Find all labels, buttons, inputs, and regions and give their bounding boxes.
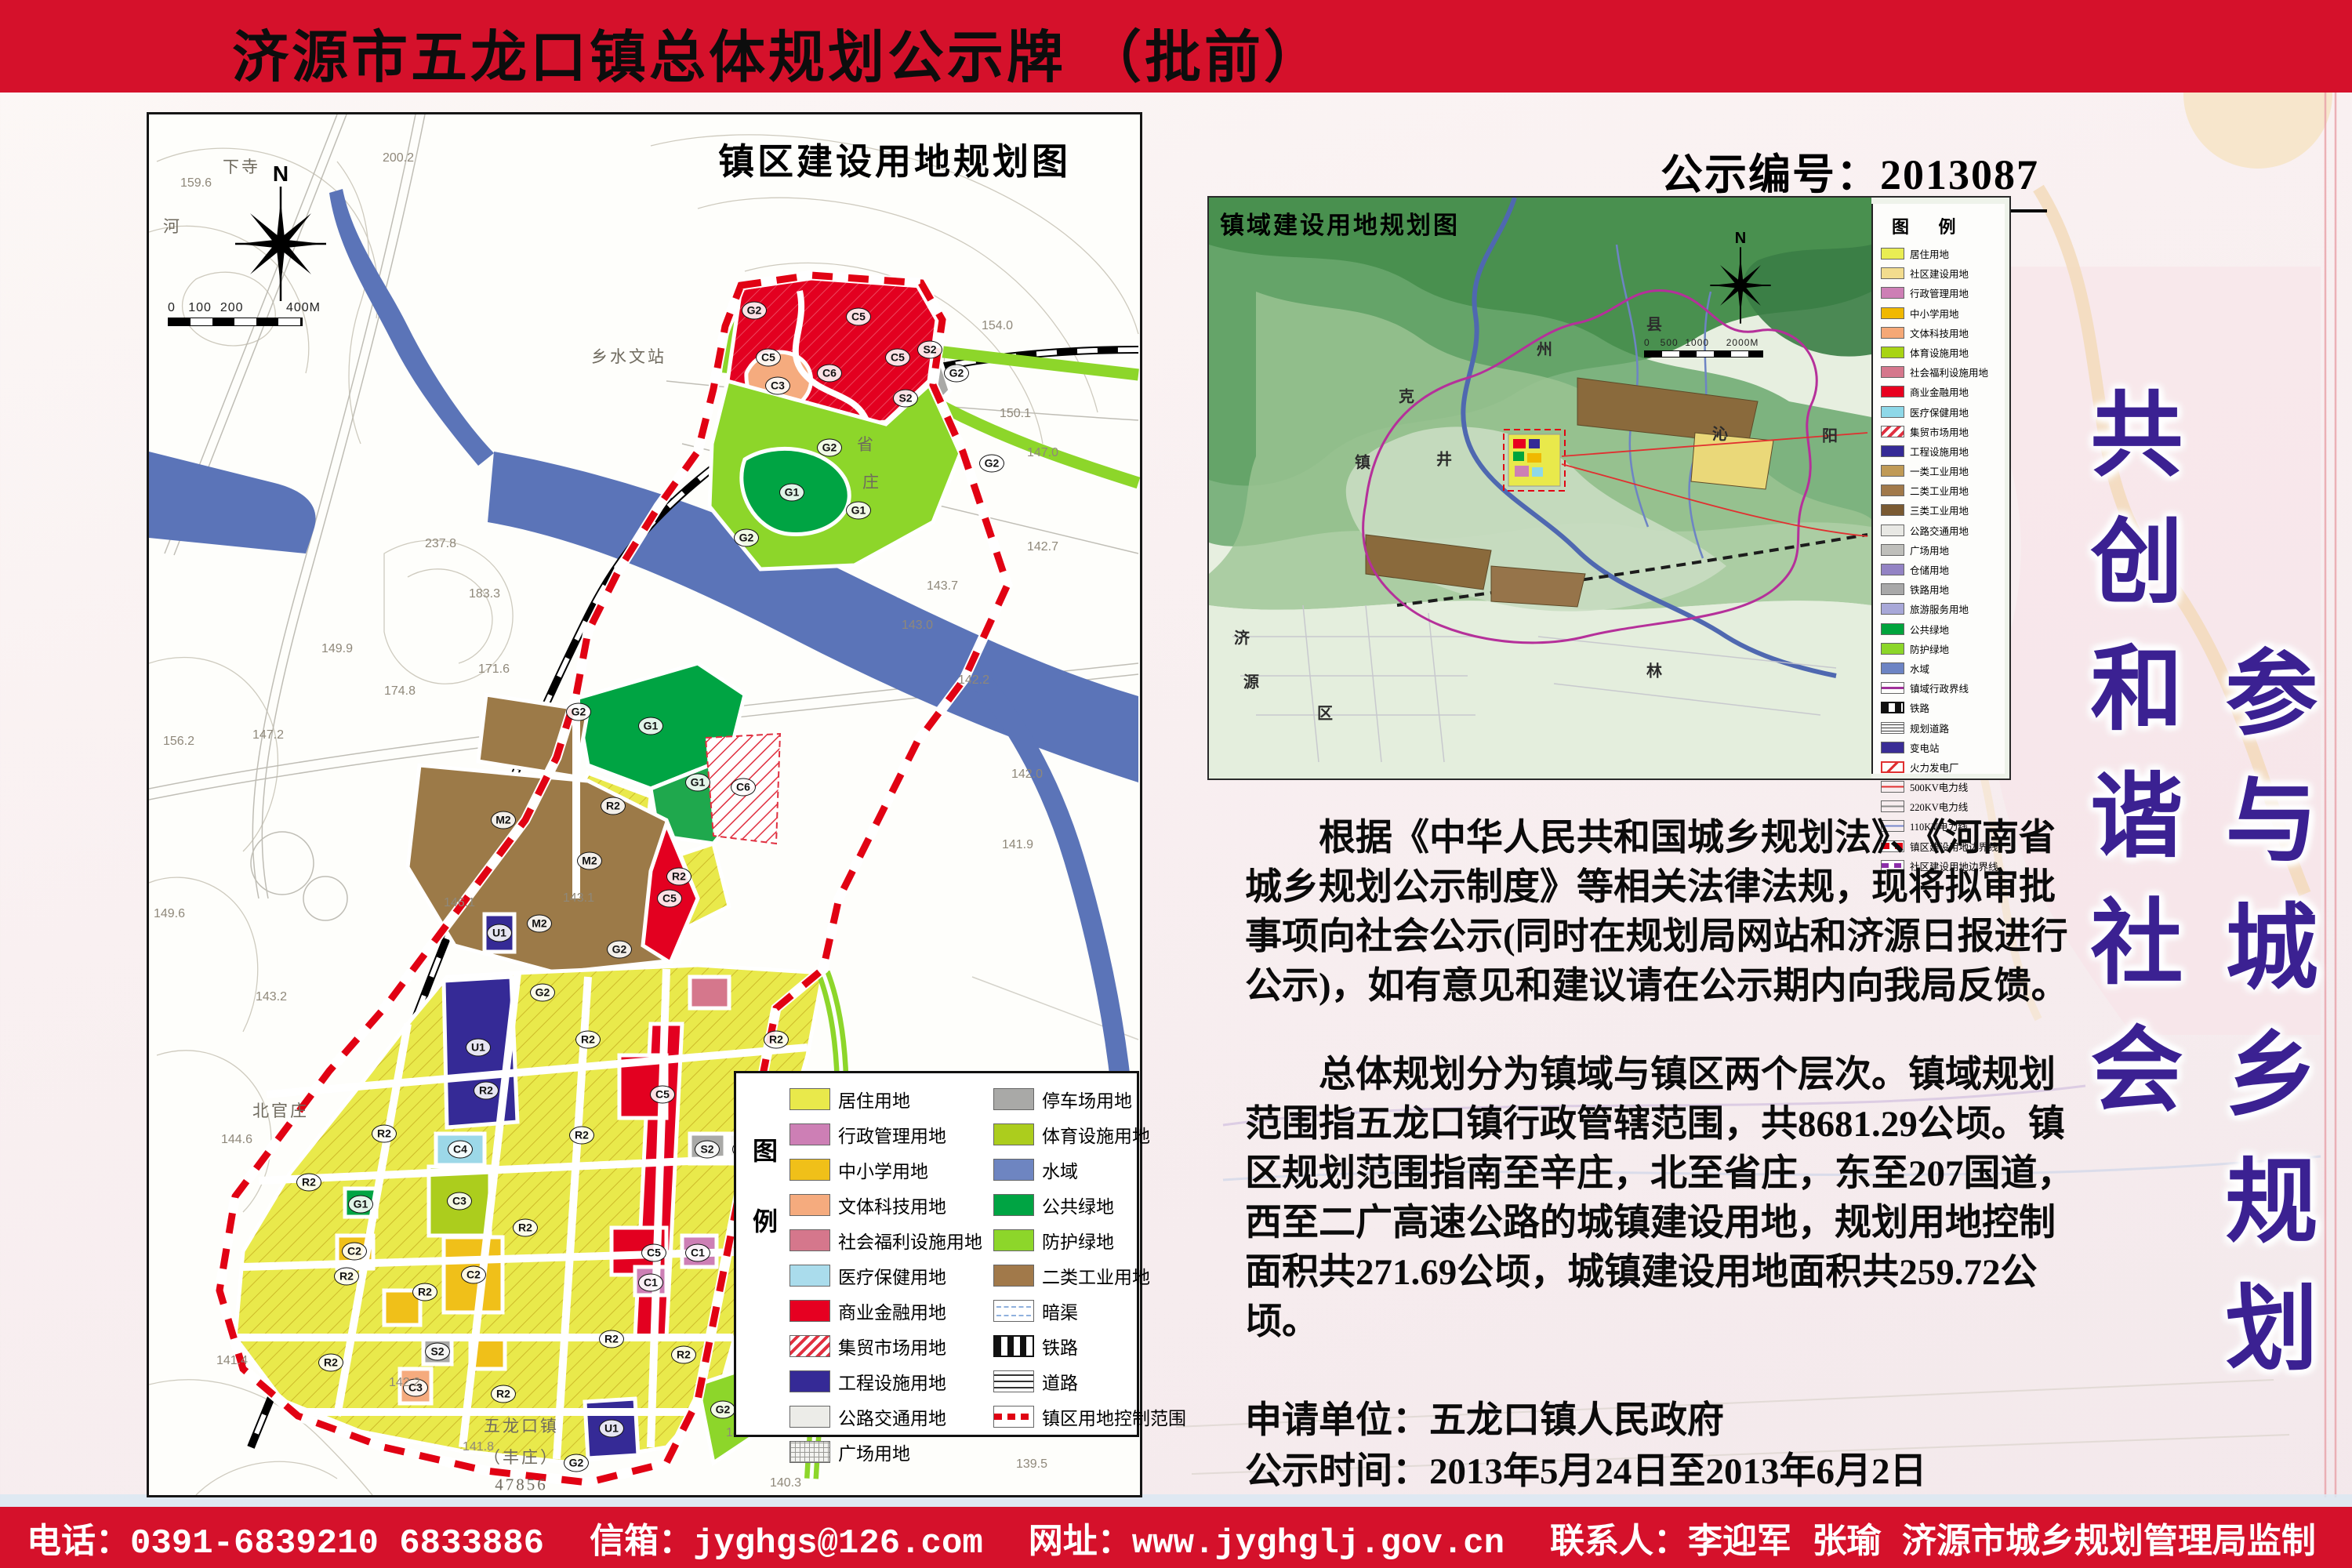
legend-item: 规划道路 — [1881, 720, 2002, 735]
legend-item: 二类工业用地 — [1881, 483, 2002, 498]
footer-phone: 电话：0391-6839210 6833886 — [27, 1512, 544, 1563]
legend-item: 旅游服务用地 — [1881, 601, 2002, 616]
zone-code-label: C5 — [657, 890, 682, 908]
legend-label: 仓储用地 — [1910, 562, 1949, 577]
legend-swatch — [789, 1300, 830, 1322]
legend-label: 居住用地 — [838, 1086, 910, 1112]
legend-label: 工程设施用地 — [1910, 444, 1969, 459]
period-line: 公示时间：2013年5月24日至2013年6月2日 — [1245, 1446, 2090, 1498]
legend-swatch — [1881, 662, 1904, 674]
legend-label: 中小学用地 — [1910, 306, 1959, 321]
footer-contact: 联系人：李迎军 张瑜 济源市城乡规划管理局监制 — [1550, 1512, 2316, 1563]
legend-item: 社会福利设施用地 — [1881, 365, 2002, 379]
place-name-label: 县 — [1646, 312, 1662, 335]
legend-label: 中小学用地 — [838, 1156, 928, 1183]
zone-code-label: G2 — [530, 984, 555, 1002]
place-name-label: 庄 — [862, 470, 881, 493]
legend-swatch — [1881, 248, 1904, 260]
legend-item: 一类工业用地 — [1881, 463, 2002, 478]
legend-item: 工程设施用地 — [789, 1368, 982, 1395]
elevation-label: 140.3 — [770, 1476, 801, 1490]
zone-code-label: M2 — [527, 915, 552, 933]
legend-swatch — [1881, 307, 1904, 319]
zone-code-label: C5 — [641, 1244, 666, 1262]
place-name-label: 乡水文站 — [591, 344, 666, 368]
zone-code-label: R2 — [671, 1346, 696, 1364]
legend-item: 三类工业用地 — [1881, 503, 2002, 517]
elevation-label: 156.2 — [163, 735, 194, 749]
legend-item: 水域 — [993, 1156, 1186, 1183]
legend-swatch — [1881, 465, 1904, 477]
legend-label: 一类工业用地 — [1910, 463, 1969, 478]
zone-code-label: R2 — [575, 1031, 601, 1049]
legend-label: 集贸市场用地 — [838, 1333, 946, 1359]
legend-column-1: 居住用地行政管理用地中小学用地文体科技用地社会福利设施用地医疗保健用地商业金融用… — [789, 1086, 982, 1430]
place-name-label: 州 — [1537, 337, 1552, 360]
legend-label: 公共绿地 — [1042, 1192, 1114, 1218]
legend-item: 居住用地 — [1881, 246, 2002, 261]
zone-code-label: R2 — [372, 1125, 397, 1143]
zone-code-label: C6 — [731, 779, 756, 797]
place-name-label: （丰庄） — [484, 1445, 559, 1468]
legend-item: 广场用地 — [789, 1439, 982, 1465]
elevation-label: 142.2 — [389, 1376, 420, 1390]
legend-swatch — [1881, 287, 1904, 299]
zone-code-label: G2 — [817, 439, 842, 457]
legend-swatch — [1881, 504, 1904, 516]
zone-code-label: S2 — [425, 1343, 450, 1361]
zone-code-label: R2 — [764, 1031, 789, 1049]
legend-item: 医疗保健用地 — [1881, 405, 2002, 419]
zone-code-label: G2 — [566, 703, 591, 721]
elevation-label: 150.1 — [1000, 407, 1031, 421]
zone-code-label: R2 — [601, 797, 626, 815]
legend-label: 变电站 — [1910, 740, 1940, 755]
legend-label: 水域 — [1910, 661, 1929, 676]
legend-item: 工程设施用地 — [1881, 444, 2002, 459]
legend-swatch — [1881, 603, 1904, 615]
legend-swatch — [1881, 426, 1904, 437]
legend-swatch — [1881, 267, 1904, 279]
legend-swatch — [789, 1229, 830, 1251]
elevation-label: 139.5 — [1016, 1457, 1047, 1472]
legend-item: 体育设施用地 — [1881, 345, 2002, 360]
place-name-label: 济 — [1234, 626, 1250, 648]
legend-label: 文体科技用地 — [838, 1192, 946, 1218]
place-name-label: 井 — [1436, 447, 1452, 470]
legend-label: 二类工业用地 — [1042, 1262, 1150, 1289]
zone-code-label: R2 — [513, 1219, 538, 1237]
footer-mail: 信箱：jyghgs@126.com — [590, 1512, 983, 1563]
legend-label: 集贸市场用地 — [1910, 424, 1969, 439]
zone-code-label: G2 — [734, 529, 759, 547]
legend-label: 铁路用地 — [1910, 582, 1949, 597]
legend-item: 商业金融用地 — [789, 1298, 982, 1324]
legend-swatch — [1881, 702, 1904, 713]
legend-rows: 居住用地社区建设用地行政管理用地中小学用地文体科技用地体育设施用地社会福利设施用… — [1881, 246, 2002, 873]
place-name-label: 北官庄 — [252, 1098, 309, 1122]
legend-swatch — [789, 1194, 830, 1216]
legend-swatch — [1881, 524, 1904, 536]
legend-swatch — [789, 1123, 830, 1145]
legend-item: 铁路用地 — [1881, 582, 2002, 597]
legend-swatch — [1881, 366, 1904, 378]
legend-swatch — [993, 1194, 1034, 1216]
elevation-label: 142.0 — [1011, 768, 1043, 782]
legend-item: 道路 — [993, 1368, 1186, 1395]
elevation-label: 143.1 — [563, 891, 594, 906]
legend-item: 公共绿地 — [993, 1192, 1186, 1218]
legend-swatch — [993, 1088, 1034, 1110]
elevation-label: 144.6 — [221, 1133, 252, 1147]
place-name-label: 镇 — [1355, 450, 1370, 473]
legend-item: 220KV电力线 — [1881, 799, 2002, 814]
elevation-label: 183.3 — [469, 587, 500, 601]
elevation-label: 141.4 — [216, 1354, 248, 1368]
legend-label: 工程设施用地 — [838, 1368, 946, 1395]
legend-swatch — [1881, 445, 1904, 457]
elevation-label: 143.7 — [927, 579, 958, 593]
place-name-label: 省 — [857, 432, 876, 456]
elevation-label: 142.2 — [958, 673, 989, 688]
legend-item: 防护绿地 — [993, 1227, 1186, 1254]
legend-label: 医疗保健用地 — [838, 1262, 946, 1289]
place-name-label: 沁 — [1712, 422, 1728, 445]
zone-code-label: G2 — [742, 302, 767, 320]
legend-column-2: 停车场用地体育设施用地水域公共绿地防护绿地二类工业用地暗渠铁路道路镇区用地控制范… — [993, 1086, 1186, 1430]
legend-item: 停车场用地 — [993, 1086, 1186, 1112]
legend-swatch — [789, 1335, 830, 1357]
legend-swatch — [993, 1370, 1034, 1392]
zone-code-label: M2 — [577, 852, 602, 870]
legend-label: 停车场用地 — [1042, 1086, 1132, 1112]
legend-label: 社区建设用地 — [1910, 266, 1969, 281]
legend-item: 社会福利设施用地 — [789, 1227, 982, 1254]
legend-label: 文体科技用地 — [1910, 325, 1969, 340]
elevation-label: 149.9 — [321, 642, 353, 656]
zone-code-label: C3 — [447, 1192, 472, 1210]
place-name-label: 下寺 — [223, 154, 260, 178]
zone-code-label: R2 — [599, 1330, 624, 1348]
legend-swatch — [1881, 544, 1904, 556]
place-name-label: 克 — [1399, 384, 1414, 407]
zone-code-label: R2 — [296, 1174, 321, 1192]
elevation-label: 149.6 — [154, 907, 185, 921]
footer-web: 网址：www.jyghglj.gov.cn — [1029, 1512, 1504, 1563]
legend-label: 三类工业用地 — [1910, 503, 1969, 517]
legend-swatch — [1881, 623, 1904, 635]
zone-code-label: C5 — [650, 1086, 675, 1104]
legend-swatch — [1881, 742, 1904, 753]
zone-code-label: G1 — [846, 502, 871, 520]
legend-swatch — [789, 1406, 830, 1428]
legend-item: 体育设施用地 — [993, 1121, 1186, 1148]
legend-item: 公路交通用地 — [789, 1403, 982, 1430]
legend-item: 仓储用地 — [1881, 562, 2002, 577]
legend-item: 社区建设用地 — [1881, 266, 2002, 281]
footer-band: 电话：0391-6839210 6833886 信箱：jyghgs@126.co… — [0, 1507, 2352, 1568]
zone-code-label: R2 — [318, 1354, 343, 1372]
legend-label: 铁路 — [1042, 1333, 1078, 1359]
legend-item: 中小学用地 — [1881, 306, 2002, 321]
paragraph-1: 根据《中华人民共和国城乡规划法》、《河南省城乡规划公示制度》等相关法律法规，现将… — [1245, 814, 2090, 1011]
legend-swatch — [993, 1406, 1034, 1428]
zone-code-label: R2 — [491, 1385, 516, 1403]
legend-label: 公路交通用地 — [838, 1403, 946, 1430]
zone-code-label: C6 — [817, 365, 842, 383]
legend-item: 行政管理用地 — [789, 1121, 982, 1148]
legend-item: 镇区用地控制范围 — [993, 1403, 1186, 1430]
legend-item: 商业金融用地 — [1881, 384, 2002, 399]
elevation-label: 159.6 — [180, 176, 212, 191]
legend-swatch — [993, 1335, 1034, 1357]
legend-item: 行政管理用地 — [1881, 285, 2002, 300]
legend-label: 行政管理用地 — [1910, 285, 1969, 300]
legend-label: 旅游服务用地 — [1910, 601, 1969, 616]
zone-code-label: G2 — [944, 365, 969, 383]
applicant-line: 申请单位：五龙口镇人民政府 — [1245, 1396, 2090, 1447]
legend-swatch — [993, 1265, 1034, 1287]
zone-code-label: C1 — [638, 1274, 663, 1292]
zone-code-label: S2 — [695, 1141, 720, 1159]
legend-item: 二类工业用地 — [993, 1262, 1186, 1289]
place-name-label: 五龙口镇 — [484, 1414, 559, 1437]
paragraph-2: 总体规划分为镇域与镇区两个层次。镇域规划范围指五龙口镇行政管辖范围，共8681.… — [1245, 1051, 2090, 1347]
legend-item: 中小学用地 — [789, 1156, 982, 1183]
poster-title: 济源市五龙口镇总体规划公示牌 （批前） — [232, 11, 1323, 93]
legend-label: 广场用地 — [838, 1439, 910, 1465]
legend-item: 公共绿地 — [1881, 622, 2002, 637]
legend-swatch — [1881, 347, 1904, 358]
legend-swatch — [993, 1123, 1034, 1145]
legend-label: 医疗保健用地 — [1910, 405, 1969, 419]
legend-swatch — [789, 1159, 830, 1181]
legend-label: 商业金融用地 — [838, 1298, 946, 1324]
legend-label: 镇区用地控制范围 — [1042, 1403, 1186, 1430]
zone-code-label: U1 — [487, 924, 512, 942]
legend-label: 二类工业用地 — [1910, 483, 1969, 498]
zone-code-label: G1 — [779, 484, 804, 502]
legend-item: 变电站 — [1881, 740, 2002, 755]
legend-item: 居住用地 — [789, 1086, 982, 1112]
legend-swatch — [789, 1441, 830, 1463]
legend-item: 文体科技用地 — [789, 1192, 982, 1218]
place-name-label: 区 — [1317, 701, 1333, 724]
slogan-second: 参与城乡规划 — [2195, 644, 2329, 1406]
zone-code-label: U1 — [466, 1039, 491, 1057]
zone-code-label: M2 — [491, 811, 516, 829]
town-area-land-use-map: 镇区建设用地规划图 N 0 100 200 400M C5C5C6C5S2S2C… — [147, 112, 1142, 1497]
legend-item: 镇域行政界线 — [1881, 681, 2002, 695]
legend-label: 水域 — [1042, 1156, 1078, 1183]
legend-label: 体育设施用地 — [1910, 345, 1969, 360]
zone-code-label: C5 — [756, 349, 781, 367]
legend-swatch — [1881, 643, 1904, 655]
legend-item: 广场用地 — [1881, 543, 2002, 557]
left-map-legend: 图例 居住用地行政管理用地中小学用地文体科技用地社会福利设施用地医疗保健用地商业… — [734, 1071, 1139, 1437]
elevation-label: 143.2 — [256, 990, 287, 1004]
legend-swatch — [993, 1159, 1034, 1181]
zone-code-label: G1 — [638, 717, 663, 735]
elevation-label: 147.2 — [252, 728, 284, 742]
zone-code-label: C3 — [765, 377, 790, 395]
elevation-label: 141.9 — [1002, 838, 1033, 852]
legend-item: 铁路 — [993, 1333, 1186, 1359]
right-map-legend: 图 例 居住用地社区建设用地行政管理用地中小学用地文体科技用地体育设施用地社会福… — [1871, 204, 2005, 774]
legend-swatch — [1881, 583, 1904, 595]
zone-code-label: G1 — [348, 1196, 373, 1214]
legend-label: 公路交通用地 — [1910, 523, 1969, 538]
zone-code-label: G2 — [607, 941, 632, 959]
place-name-label: 源 — [1243, 670, 1259, 692]
elevation-label: 147.0 — [1027, 446, 1058, 460]
legend-item: 暗渠 — [993, 1298, 1186, 1324]
zone-code-label: R2 — [334, 1268, 359, 1286]
zone-code-label: C1 — [685, 1244, 710, 1262]
place-name-label: 林 — [1646, 659, 1662, 681]
zone-code-label: U1 — [599, 1420, 624, 1438]
legend-item: 500KV电力线 — [1881, 779, 2002, 794]
legend-item: 公路交通用地 — [1881, 523, 2002, 538]
elevation-label: 171.6 — [478, 662, 510, 677]
zone-code-label: C5 — [885, 349, 910, 367]
legend-swatch — [1881, 485, 1904, 496]
legend-item: 医疗保健用地 — [789, 1262, 982, 1289]
elevation-label: 200.2 — [383, 151, 414, 165]
place-name-label: 河 — [163, 214, 182, 238]
legend-swatch — [1881, 722, 1904, 734]
zone-code-label: R2 — [412, 1283, 437, 1301]
legend-label: 铁路 — [1910, 700, 1929, 715]
legend-label: 广场用地 — [1910, 543, 1949, 557]
elevation-label: 142.7 — [1027, 540, 1058, 554]
elevation-label: 146.1 — [444, 896, 475, 910]
zone-code-label: C5 — [846, 308, 871, 326]
township-land-use-map: 镇域建设用地规划图 N 0 500 1000 2000M 克井镇州县沁阳济源林区… — [1207, 196, 2011, 780]
legend-label: 防护绿地 — [1910, 641, 1949, 656]
legend-swatch — [1881, 327, 1904, 339]
legend-label: 居住用地 — [1910, 246, 1949, 261]
zone-code-label: R2 — [474, 1082, 499, 1100]
legend-label: 镇域行政界线 — [1910, 681, 1969, 695]
elevation-label: 154.0 — [982, 319, 1013, 333]
elevation-label: 143.0 — [902, 619, 933, 633]
slogan-first: 共创和谐社会 — [2060, 386, 2194, 1148]
zone-code-label: S2 — [893, 390, 918, 408]
place-name-label: 阳 — [1822, 423, 1838, 446]
notice-body: 根据《中华人民共和国城乡规划法》、《河南省城乡规划公示制度》等相关法律法规，现将… — [1245, 814, 2090, 1498]
legend-item: 文体科技用地 — [1881, 325, 2002, 340]
legend-label: 500KV电力线 — [1910, 779, 1968, 794]
elevation-label: 174.8 — [384, 684, 416, 699]
legend-item: 水域 — [1881, 661, 2002, 676]
legend-swatch — [1881, 800, 1904, 812]
zone-code-label: C2 — [461, 1266, 486, 1284]
legend-swatch — [789, 1370, 830, 1392]
elevation-label: 237.8 — [425, 537, 456, 551]
legend-label: 防护绿地 — [1042, 1227, 1114, 1254]
legend-swatch — [993, 1229, 1034, 1251]
legend-label: 220KV电力线 — [1910, 799, 1968, 814]
legend-label: 公共绿地 — [1910, 622, 1949, 637]
legend-swatch — [1881, 682, 1904, 694]
zone-code-label: S2 — [917, 341, 942, 359]
zone-code-label: C4 — [448, 1141, 473, 1159]
legend-label: 行政管理用地 — [838, 1121, 946, 1148]
zone-code-label: C2 — [342, 1243, 367, 1261]
legend-label: 社会福利设施用地 — [1910, 365, 1988, 379]
legend-label: 火力发电厂 — [1910, 760, 1959, 775]
legend-swatch — [789, 1088, 830, 1110]
place-name-label: 47856 — [495, 1475, 548, 1495]
zone-code-label: G1 — [685, 774, 710, 792]
legend-item: 集贸市场用地 — [789, 1333, 982, 1359]
zone-code-label: R2 — [569, 1127, 594, 1145]
legend-label: 社会福利设施用地 — [838, 1227, 982, 1254]
legend-swatch — [1881, 761, 1904, 773]
legend-item: 集贸市场用地 — [1881, 424, 2002, 439]
legend-swatch — [993, 1300, 1034, 1322]
zone-code-label: G2 — [979, 455, 1004, 473]
legend-label: 道路 — [1042, 1368, 1078, 1395]
legend-swatch — [1881, 564, 1904, 575]
legend-swatch — [1881, 386, 1904, 397]
legend-label: 商业金融用地 — [1910, 384, 1969, 399]
legend-title: 图例 — [746, 1138, 782, 1430]
legend-label: 暗渠 — [1042, 1298, 1078, 1324]
legend-item: 铁路 — [1881, 700, 2002, 715]
zone-code-label: G2 — [564, 1454, 589, 1472]
legend-title: 图 例 — [1892, 213, 2002, 238]
zone-code-label: G2 — [710, 1401, 735, 1419]
legend-item: 火力发电厂 — [1881, 760, 2002, 775]
legend-swatch — [1881, 406, 1904, 418]
legend-item: 防护绿地 — [1881, 641, 2002, 656]
legend-swatch — [789, 1265, 830, 1287]
legend-label: 体育设施用地 — [1042, 1121, 1150, 1148]
zone-code-label: R2 — [666, 868, 691, 886]
legend-label: 规划道路 — [1910, 720, 1949, 735]
legend-swatch — [1881, 781, 1904, 793]
